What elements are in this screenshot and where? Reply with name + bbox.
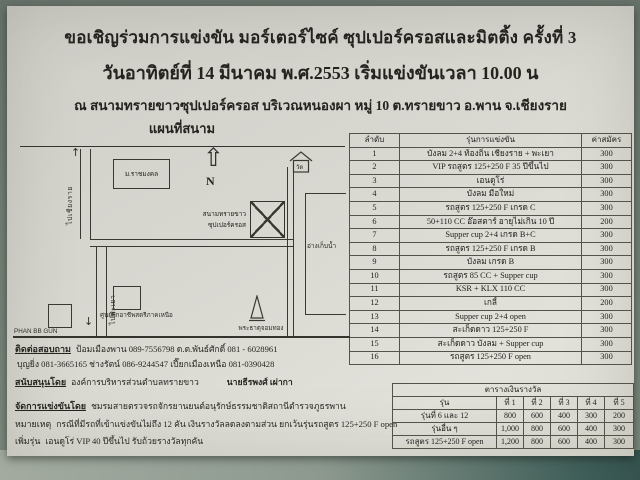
organizer-label: จัดการแข่งขันโดย: [15, 401, 86, 411]
road-label-to-chiangrai: ไปเชียงราย: [64, 163, 75, 225]
race-no: 10: [350, 269, 400, 283]
table-row: 2VIP รถสูตร 125+250 F 35 ปีขึ้นไป300: [350, 161, 632, 175]
venue-map: ↑ ไปเชียงราย ไปพะเยา ↓ ม.ราชมงคล ⇧ N วัด…: [20, 146, 345, 337]
prize-col-1st: ที่ 1: [497, 397, 524, 410]
flyer-paper: ขอเชิญร่วมการแข่งขัน มอร์เตอร์ไซค์ ซุปเป…: [7, 6, 634, 456]
prize-amount: 800: [524, 423, 551, 436]
prize-row: รถสูตร 125+250 F open 1,200 800 600 400 …: [393, 436, 634, 449]
reservoir-outline: [305, 193, 346, 315]
race-class: รถสูตร 125+250 F open: [400, 351, 582, 365]
race-fee: 300: [582, 161, 632, 175]
sponsor-line: สนับสนุนโดยองค์การบริหารส่วนตำบลทรายขาวน…: [15, 376, 417, 389]
prize-amount: 800: [497, 410, 524, 423]
race-fee: 300: [582, 310, 632, 324]
race-fee: 300: [582, 337, 632, 351]
prize-amount: 300: [605, 423, 634, 436]
prize-title-row: ตารางเงินรางวัล: [393, 384, 634, 397]
prize-col-2nd: ที่ 2: [524, 397, 551, 410]
prize-amount: 1,200: [497, 436, 524, 449]
divider-line: [13, 336, 350, 338]
road-right-line: [293, 167, 294, 337]
table-row: 13Supper cup 2+4 open300: [350, 310, 632, 324]
race-class: Supper cup 2+4 open: [400, 310, 582, 324]
table-row: 650+110 CC อ๊อสตาร์ อายุไม่เกิน 10 ปี200: [350, 215, 632, 229]
race-no: 12: [350, 297, 400, 311]
prize-row: รุ่นอื่น ๆ 1,000 800 600 400 300: [393, 423, 634, 436]
university-label: ม.ราชมงคล: [125, 169, 158, 179]
race-classes-table: ลำดับ รุ่นการแข่งขัน ค่าสมัคร 1บังลม 2+4…: [349, 133, 632, 365]
organizer-line: จัดการแข่งขันโดยชมรมสายตรวจรถจักรยานยนต์…: [15, 400, 417, 413]
track-label-line2: ซุปเปอร์ครอส: [182, 220, 246, 231]
table-row: 9บังลม เกรด B300: [350, 256, 632, 270]
extra-class-line: เพิ่มรุ่นเอนดูโร่ VIP 40 ปีขึ้นไป รับถ้ว…: [15, 435, 417, 448]
table-row: 7Supper cup 2+4 เกรด B+C300: [350, 229, 632, 243]
race-class: 50+110 CC อ๊อสตาร์ อายุไม่เกิน 10 ปี: [400, 215, 582, 229]
note-text: กรณีที่มีรถที่เข้าแข่งขันไม่ถึง 12 คัน เ…: [56, 419, 397, 429]
road-chiangrai-line: [80, 149, 81, 239]
race-class: บังลม มือใหม่: [400, 188, 582, 202]
map-landmark-training-center: [113, 286, 141, 310]
extra-text: เอนดูโร่ VIP 40 ปีขึ้นไป รับถ้วยรางวัลทุ…: [45, 436, 203, 446]
road-main-line: [90, 239, 293, 240]
event-date-line: วันอาทิตย์ที่ 14 มีนาคม พ.ศ.2553 เริ่มแข…: [7, 58, 634, 87]
training-center-label: ศูนย์ฝึกอาชีพสตรีภาคเหนือ: [100, 310, 173, 320]
race-class: รถสูตร 125+250 F เกรด B: [400, 242, 582, 256]
table-row: 12เกลี้200: [350, 297, 632, 311]
race-no: 5: [350, 201, 400, 215]
race-class: Supper cup 2+4 เกรด B+C: [400, 229, 582, 243]
temple-label: วัด: [296, 162, 303, 172]
race-class: VIP รถสูตร 125+250 F 35 ปีขึ้นไป: [400, 161, 582, 175]
race-fee: 200: [582, 215, 632, 229]
prize-col-4th: ที่ 4: [578, 397, 605, 410]
event-venue-line: ณ สนามทรายขาวซุปเปอร์ครอส บริเวณหนองผา ห…: [7, 94, 634, 116]
race-no: 7: [350, 229, 400, 243]
race-fee: 300: [582, 188, 632, 202]
race-fee: 300: [582, 242, 632, 256]
contact-text: ป้อมเมืองพาน 089-7556798 ด.ต.พันธ์ศักดิ์…: [76, 344, 278, 354]
race-fee: 300: [582, 201, 632, 215]
arrow-up-icon: ↑: [71, 146, 80, 159]
prize-col-5th: ที่ 5: [605, 397, 634, 410]
race-no: 8: [350, 242, 400, 256]
map-landmark-bbgun: [48, 304, 72, 328]
bbgun-label: PHAN BB GUN: [14, 328, 57, 335]
table-row: 14สะเก็ดดาว 125+250 F300: [350, 324, 632, 338]
race-class: รถสูตร 125+250 F เกรด C: [400, 201, 582, 215]
race-class: บังลม 2+4 ท้องถิ่น เชียงราย + พะเยา: [400, 147, 582, 161]
race-fee: 300: [582, 351, 632, 365]
race-fee: 300: [582, 283, 632, 297]
prize-header-row: รุ่น ที่ 1 ที่ 2 ที่ 3 ที่ 4 ที่ 5: [393, 397, 634, 410]
prize-amount: 1,000: [497, 423, 524, 436]
race-class: KSR + KLX 110 CC: [400, 283, 582, 297]
race-fee: 200: [582, 297, 632, 311]
sponsor-name: นายธีรพงศ์ เผ่ากา: [227, 377, 293, 387]
contact-text-2: บุญยิ่ง 081-3665165 ช่างรัตน์ 086-924454…: [17, 359, 274, 369]
race-no: 14: [350, 324, 400, 338]
sponsor-org: องค์การบริหารส่วนตำบลทรายขาว: [71, 377, 199, 387]
race-no: 4: [350, 188, 400, 202]
table-row: 10รถสูตร 85 CC + Supper cup300: [350, 269, 632, 283]
prize-money-table: ตารางเงินรางวัล รุ่น ที่ 1 ที่ 2 ที่ 3 ท…: [392, 383, 634, 449]
contact-line-2: บุญยิ่ง 081-3665165 ช่างรัตน์ 086-924454…: [15, 358, 417, 371]
page-title: ขอเชิญร่วมการแข่งขัน มอร์เตอร์ไซค์ ซุปเป…: [7, 24, 634, 51]
prize-amount: 600: [551, 423, 578, 436]
table-row: 11KSR + KLX 110 CC300: [350, 283, 632, 297]
race-no: 2: [350, 161, 400, 175]
contact-line: ติดต่อสอบถามป้อมเมืองพาน 089-7556798 ด.ต…: [15, 343, 417, 356]
prize-amount: 200: [605, 410, 634, 423]
prize-table-title: ตารางเงินรางวัล: [393, 384, 634, 397]
col-header-no: ลำดับ: [350, 134, 400, 148]
race-fee: 300: [582, 256, 632, 270]
race-no: 3: [350, 174, 400, 188]
race-fee: 300: [582, 174, 632, 188]
table-row: 4บังลม มือใหม่300: [350, 188, 632, 202]
pagoda-icon: [248, 295, 266, 322]
race-class: เกลี้: [400, 297, 582, 311]
road-main-line: [90, 246, 293, 247]
road-right-line: [287, 167, 288, 337]
table-row: 3เอนดูโร่300: [350, 174, 632, 188]
race-no: 13: [350, 310, 400, 324]
track-label: สนามทรายขาว ซุปเปอร์ครอส: [182, 209, 246, 231]
pagoda-label: พระธาตุจอมทอง: [218, 323, 304, 333]
temple-icon: วัด: [288, 151, 314, 175]
prize-amount: 800: [524, 436, 551, 449]
road-phayao-line: [96, 246, 97, 337]
race-no: 11: [350, 283, 400, 297]
table-row: 8รถสูตร 125+250 F เกรด B300: [350, 242, 632, 256]
race-fee: 300: [582, 229, 632, 243]
race-no: 9: [350, 256, 400, 270]
organizer-text: ชมรมสายตรวจรถจักรยานยนต์อนุรักษ์ธรรมชาติ…: [91, 401, 346, 411]
road-chiangrai-line: [90, 149, 91, 239]
track-label-line1: สนามทรายขาว: [182, 209, 246, 220]
note-line: หมายเหตุกรณีที่มีรถที่เข้าแข่งขันไม่ถึง …: [15, 418, 417, 431]
race-fee: 300: [582, 324, 632, 338]
race-class: บังลม เกรด B: [400, 256, 582, 270]
race-fee: 300: [582, 147, 632, 161]
table-row: 5รถสูตร 125+250 F เกรด C300: [350, 201, 632, 215]
table-row: 1บังลม 2+4 ท้องถิ่น เชียงราย + พะเยา300: [350, 147, 632, 161]
map-landmark-university: ม.ราชมงคล: [113, 159, 170, 189]
arrow-down-icon: ↓: [84, 315, 93, 328]
race-class: เอนดูโร่: [400, 174, 582, 188]
supercross-track-icon: [250, 201, 285, 238]
footer-info: ติดต่อสอบถามป้อมเมืองพาน 089-7556798 ด.ต…: [15, 343, 417, 448]
note-label: หมายเหตุ: [15, 419, 51, 429]
prize-col-3rd: ที่ 3: [551, 397, 578, 410]
col-header-class: รุ่นการแข่งขัน: [400, 134, 582, 148]
prize-amount: 600: [524, 410, 551, 423]
north-label: N: [206, 174, 215, 189]
race-fee: 300: [582, 269, 632, 283]
map-title: แผนที่สนาม: [62, 118, 302, 139]
table-header-row: ลำดับ รุ่นการแข่งขัน ค่าสมัคร: [350, 134, 632, 148]
prize-amount: 400: [551, 410, 578, 423]
race-class: สะเก็ดดาว บังลม + Supper cup: [400, 337, 582, 351]
race-class: รถสูตร 85 CC + Supper cup: [400, 269, 582, 283]
prize-amount: 300: [578, 410, 605, 423]
contact-label: ติดต่อสอบถาม: [15, 344, 71, 354]
race-no: 1: [350, 147, 400, 161]
north-arrow-icon: ⇧: [203, 145, 224, 170]
prize-amount: 300: [605, 436, 634, 449]
prize-row: รุ่นที่ 6 และ 12 800 600 400 300 200: [393, 410, 634, 423]
col-header-fee: ค่าสมัคร: [582, 134, 632, 148]
reservoir-label: อ่างเก็บน้ำ: [307, 241, 336, 251]
extra-label: เพิ่มรุ่น: [15, 436, 40, 446]
race-class: สะเก็ดดาว 125+250 F: [400, 324, 582, 338]
prize-amount: 400: [578, 423, 605, 436]
prize-amount: 600: [551, 436, 578, 449]
race-no: 6: [350, 215, 400, 229]
prize-amount: 400: [578, 436, 605, 449]
sponsor-label: สนับสนุนโดย: [15, 377, 66, 387]
